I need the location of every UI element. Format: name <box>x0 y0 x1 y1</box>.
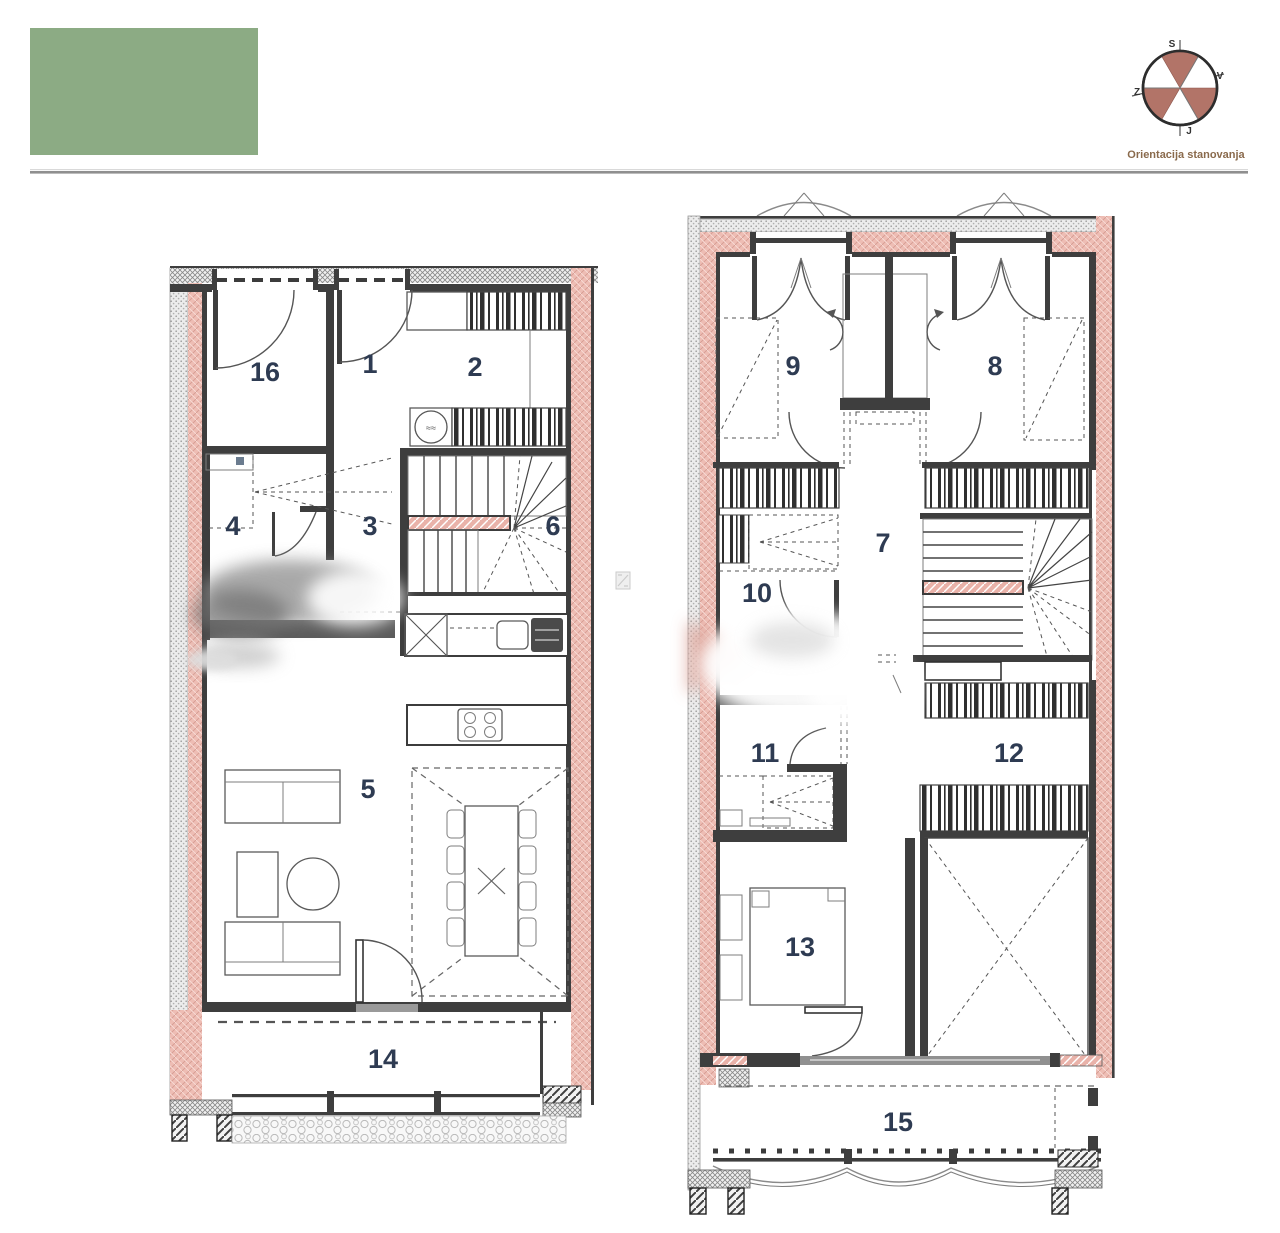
floor-plan-page: S V J Z Orientacija stanovanja <box>0 0 1280 1233</box>
french-window-8 <box>950 232 1052 254</box>
stairs-upper <box>913 513 1092 680</box>
room-label-11: 11 <box>751 738 780 768</box>
compass-south-label: J <box>1186 126 1192 137</box>
wardrobe-under-stairs <box>925 683 1088 718</box>
room-label-14: 14 <box>368 1044 398 1074</box>
wardrobe-under-8 <box>925 468 1088 508</box>
pillow <box>752 891 769 907</box>
wall-16-1 <box>326 286 334 454</box>
window-room16 <box>212 269 318 290</box>
french-window-9 <box>750 232 852 254</box>
svg-text:≈≈: ≈≈ <box>426 423 436 433</box>
wall-below-16 <box>202 446 334 454</box>
compass-north-label: S <box>1169 39 1176 50</box>
room13-bedroom <box>720 888 862 1056</box>
room-label-3: 3 <box>362 511 377 541</box>
room-label-15: 15 <box>883 1107 913 1137</box>
room11-bathroom <box>713 706 847 842</box>
room-label-2: 2 <box>467 352 482 382</box>
exterior-insulation-left <box>170 268 188 1105</box>
divider-light <box>30 169 1248 170</box>
room-label-10: 10 <box>742 578 772 608</box>
censor-blur-right <box>688 611 917 726</box>
dining-area <box>412 768 568 996</box>
terrace-14 <box>170 1010 581 1143</box>
censor-blur-left <box>186 560 403 670</box>
room2-wardrobe: ≈≈ <box>407 292 566 446</box>
room-label-7: 7 <box>875 528 890 558</box>
coffee-table-icon <box>287 858 339 910</box>
compass-rose: S V J Z <box>1132 39 1224 137</box>
room-label-1: 1 <box>362 349 377 379</box>
loft-outline-8 <box>1024 318 1084 440</box>
terrace-15 <box>688 1069 1102 1214</box>
divider-line <box>30 171 1248 174</box>
nightstand <box>720 895 742 940</box>
compass-caption: Orientacija stanovanja <box>1127 149 1245 161</box>
door-arcs-8 <box>952 256 1050 320</box>
compass-east-label: V <box>1217 71 1224 82</box>
exterior-wall-pink-left <box>188 268 202 1100</box>
kitchen-island <box>407 705 568 745</box>
room-label-6: 6 <box>545 511 560 541</box>
awning-arcs <box>757 193 1051 216</box>
window-room1 <box>334 269 410 290</box>
loft-outline-9 <box>716 318 778 438</box>
exterior-wall-pink-right <box>571 268 591 1090</box>
floor-plan-left: ≈≈ <box>170 266 598 1143</box>
awning-wave <box>713 1166 1099 1183</box>
section-marker <box>616 572 630 589</box>
room-label-9: 9 <box>785 351 800 381</box>
compass-west-label: Z <box>1134 87 1140 98</box>
room-label-12: 12 <box>994 738 1024 768</box>
nightstand <box>720 955 742 1000</box>
room-label-13: 13 <box>785 932 815 962</box>
gravel-strip <box>232 1116 566 1143</box>
room-label-4: 4 <box>225 511 240 541</box>
wardrobe-under-9 <box>719 468 839 508</box>
stairs-lower <box>408 456 568 596</box>
wardrobe-room12 <box>920 785 1088 831</box>
logo-swatch <box>30 28 258 155</box>
wall-stairs-top <box>400 448 568 456</box>
room-label-16: 16 <box>250 357 280 387</box>
floor-plan-right: 9 8 10 7 11 12 13 15 <box>688 193 1115 1214</box>
sofa-group <box>225 770 340 975</box>
room-label-8: 8 <box>987 351 1002 381</box>
wall-13-12 <box>905 838 915 1058</box>
plan-canvas: S V J Z Orientacija stanovanja <box>0 0 1280 1233</box>
room-label-5: 5 <box>360 774 375 804</box>
room12-area <box>920 785 1088 1059</box>
